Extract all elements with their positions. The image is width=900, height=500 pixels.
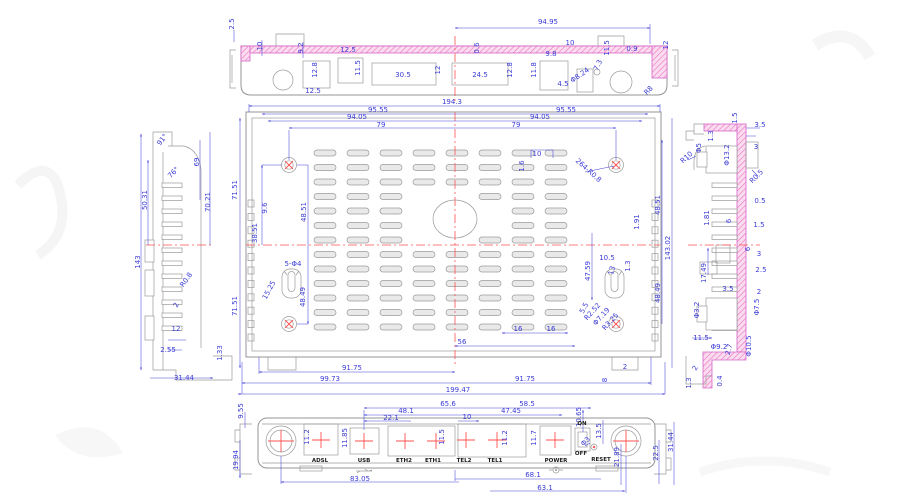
vent-slot xyxy=(446,281,468,287)
vent-slot xyxy=(545,179,567,185)
dim-label: 1.33 xyxy=(216,345,224,361)
port-label: TEL2 xyxy=(457,458,472,464)
dim-label: 5-Φ4 xyxy=(285,260,302,268)
dim-label: 1.3 xyxy=(707,130,715,141)
vent-slot xyxy=(380,252,402,258)
dim-label: 16 xyxy=(547,325,556,333)
tel-ports xyxy=(458,424,526,457)
vent-slot xyxy=(545,252,567,258)
vent-slot xyxy=(545,194,567,200)
vent-slot xyxy=(347,208,369,214)
dim-label: 69 xyxy=(193,158,201,167)
vent-slot xyxy=(314,179,336,185)
dim-label: 11.85 xyxy=(341,428,349,448)
vent-slot xyxy=(545,266,567,272)
dim-label: 91.75 xyxy=(515,375,535,383)
vent-slot xyxy=(380,165,402,171)
dim-label: 68.1 xyxy=(525,471,541,479)
dim-label: 12.5 xyxy=(340,46,356,54)
vent-slot xyxy=(347,223,369,229)
fin xyxy=(712,235,737,240)
dim-label: 12.8 xyxy=(506,62,514,78)
dim-label: 19.94 xyxy=(232,449,240,470)
vent-slot xyxy=(545,281,567,287)
port-label: TEL1 xyxy=(488,458,503,464)
dim-label: 6 xyxy=(725,218,733,223)
vent-slot xyxy=(347,252,369,258)
section-wall-hatch xyxy=(737,124,746,352)
wall-hole xyxy=(248,200,254,207)
dim-label: 2.5 xyxy=(228,18,236,29)
port-label: ON xyxy=(577,421,587,427)
top-edge-view: 2.5109.212.512.812.511.530.51224.512.80.… xyxy=(228,18,678,102)
dim-label: 2.5 xyxy=(755,266,766,274)
vent-slot xyxy=(314,150,336,156)
vent-slot xyxy=(512,295,534,301)
dim-label: 71.51 xyxy=(231,296,239,316)
vent-slot xyxy=(347,281,369,287)
vent-slot xyxy=(479,165,501,171)
vent-slot xyxy=(413,295,435,301)
port-center-mark xyxy=(355,433,373,449)
dim-label: 0.4 xyxy=(716,375,724,387)
dim-label: 11.7 xyxy=(530,430,538,446)
dim-label: 70.21 xyxy=(204,192,212,212)
dim-label: 1.91 xyxy=(633,214,641,230)
left-side-view: 14391°6970.2150.3176°R0.82122.551.3331.4… xyxy=(134,132,232,382)
vent-slot xyxy=(380,179,402,185)
dim-label: Φ8.24 xyxy=(569,66,591,85)
wall-hole xyxy=(248,280,254,287)
vent-slot xyxy=(512,281,534,287)
vent-slot xyxy=(446,295,468,301)
dim-label: Φ7.5 xyxy=(753,299,761,316)
dim-label: 2 xyxy=(757,288,761,296)
fin xyxy=(712,196,737,201)
port-label: OFF xyxy=(575,451,587,457)
dim-label: 48.49 xyxy=(299,287,307,307)
dim-label: 1.3 xyxy=(685,377,693,388)
dim-label: 94.05 xyxy=(347,113,367,121)
dim-label: 9.8 xyxy=(545,50,556,58)
vent-slot xyxy=(347,179,369,185)
screw-cross-mark xyxy=(612,161,620,169)
vent-slot xyxy=(347,150,369,156)
dim-label: 9.2 xyxy=(297,42,305,53)
vent-slot xyxy=(314,223,336,229)
usb-icon xyxy=(356,469,372,473)
dim-lines xyxy=(148,132,213,378)
dim-label: 17.49 xyxy=(700,263,708,283)
vent-slot xyxy=(512,266,534,272)
vent-slot xyxy=(314,266,336,272)
screw-cross-mark xyxy=(285,320,293,328)
vent-slot xyxy=(347,324,369,330)
fin xyxy=(162,222,182,227)
mount-hole-right xyxy=(610,71,632,93)
vent-slot xyxy=(413,165,435,171)
port-label: USB xyxy=(358,458,371,464)
dim-label: 95.55 xyxy=(368,106,388,114)
vent-slot xyxy=(314,324,336,330)
dim-label: 12.5 xyxy=(305,87,321,95)
dim-label: 8 xyxy=(601,378,609,382)
fin xyxy=(162,274,182,279)
wall-hole xyxy=(248,294,254,301)
fin xyxy=(162,248,182,253)
dim-label: 12 xyxy=(434,66,442,75)
vent-slot xyxy=(314,252,336,258)
bottom-tab-left xyxy=(268,357,296,370)
dim-label: 47.45 xyxy=(501,407,521,415)
dim-label: 79 xyxy=(512,121,521,129)
vent-slot xyxy=(380,208,402,214)
vent-slot xyxy=(446,165,468,171)
dim-label: Φ3.2 xyxy=(693,302,701,319)
port-label: ETH2 xyxy=(396,458,412,464)
section-foot-hatch xyxy=(703,352,746,388)
vent-slot xyxy=(512,223,534,229)
vent-slot xyxy=(413,179,435,185)
vent-slot xyxy=(314,194,336,200)
fin xyxy=(162,235,182,240)
dim-label: 2 xyxy=(623,363,627,371)
vent-slot xyxy=(545,310,567,316)
dim-label: 0.9 xyxy=(626,45,637,53)
vent-slot xyxy=(347,165,369,171)
vent-slot xyxy=(545,208,567,214)
dim-label: 6 xyxy=(744,246,752,251)
dim-label: Φ13.2 xyxy=(723,144,731,165)
fin xyxy=(712,209,737,214)
vent-slot xyxy=(545,150,567,156)
wall-hole xyxy=(248,307,254,314)
vent-slot xyxy=(446,150,468,156)
vent-slot xyxy=(479,310,501,316)
dim-label: 1.5 xyxy=(731,112,739,123)
vent-slot xyxy=(380,150,402,156)
leader-lines xyxy=(531,150,614,172)
dim-label: 10 xyxy=(533,150,542,158)
vent-slot xyxy=(479,252,501,258)
port-center-mark xyxy=(396,433,414,449)
vent-slot xyxy=(347,295,369,301)
dim-label: 11.5 xyxy=(603,40,611,56)
port-center-mark xyxy=(546,432,564,448)
dim-label: 48.49 xyxy=(654,283,662,303)
vent-slot xyxy=(512,237,534,243)
side-boss xyxy=(145,316,154,340)
dim-label: 7.3 xyxy=(592,58,604,71)
vent-slot xyxy=(380,266,402,272)
top-boss xyxy=(706,146,737,173)
dim-label: 4.5 xyxy=(557,80,568,88)
dim-label: 47.59 xyxy=(584,261,592,281)
vent-slot xyxy=(314,281,336,287)
wall-hole xyxy=(248,334,254,341)
dim-label: 31.44 xyxy=(174,374,195,382)
vent-slot xyxy=(479,150,501,156)
vent-slot xyxy=(545,237,567,243)
top-clip-profile xyxy=(686,124,704,140)
vent-slot xyxy=(479,237,501,243)
bottom-boss xyxy=(706,298,737,330)
vent-slot xyxy=(347,237,369,243)
vent-slot xyxy=(413,310,435,316)
top-view-hatched-edge xyxy=(250,46,654,53)
dim-label: 91.75 xyxy=(342,364,362,372)
dim-label: 11.5 xyxy=(354,60,362,76)
vent-slot xyxy=(413,324,435,330)
top-boss-tip xyxy=(697,152,707,167)
side-boss xyxy=(145,270,154,296)
dim-label: 12 xyxy=(172,325,181,333)
dim-label: R0.5 xyxy=(748,168,765,185)
dim-label: 12.8 xyxy=(311,62,319,78)
dim-label: 3.5 xyxy=(722,285,733,293)
dim-label: 1.6 xyxy=(518,160,526,172)
vent-slot xyxy=(413,252,435,258)
vent-slot xyxy=(446,324,468,330)
dim-label: 194.3 xyxy=(442,98,462,106)
dim-line-83-68-63 xyxy=(281,479,625,491)
vent-slot xyxy=(347,194,369,200)
dim-label: 11.8 xyxy=(530,62,538,78)
dim-label: 3 xyxy=(754,143,758,151)
dim-label: 65.6 xyxy=(440,400,456,408)
dim-label: 1.3 xyxy=(624,260,632,271)
vent-slot xyxy=(413,150,435,156)
vent-slot xyxy=(479,295,501,301)
vent-slot xyxy=(380,281,402,287)
dim-lines-vert xyxy=(240,410,674,485)
fin xyxy=(162,183,182,188)
dim-label: 11.2 xyxy=(303,429,311,445)
dim-label: R10 xyxy=(679,150,695,165)
vent-slot xyxy=(413,281,435,287)
dim-label: 95.55 xyxy=(556,106,576,114)
dim-label: 48.51 xyxy=(654,195,662,215)
dim-label: 83.05 xyxy=(350,475,370,483)
port-label: ADSL xyxy=(312,458,329,464)
side-boss xyxy=(145,240,154,262)
front-panel-view: 9.5565.648.122.11058.547.4510.6511.211.8… xyxy=(232,400,675,493)
vent-slot xyxy=(314,165,336,171)
dim-label: 38.51 xyxy=(251,223,259,243)
vent-slot xyxy=(380,194,402,200)
dim-label: 71.51 xyxy=(231,180,239,200)
wall-hole xyxy=(248,254,254,261)
dim-label: 22.5 xyxy=(652,445,660,461)
fin xyxy=(162,313,182,318)
top-view-hatch-right-end xyxy=(652,46,667,78)
dim-label: 13.5 xyxy=(595,423,603,439)
dim-label: 58.5 xyxy=(519,400,535,408)
dim-label: Φ5 xyxy=(695,143,703,153)
vent-slot xyxy=(545,295,567,301)
vent-slot xyxy=(380,223,402,229)
dim-label: 63.1 xyxy=(537,484,553,492)
cad-drawing: 2.5109.212.512.812.511.530.51224.512.80.… xyxy=(0,0,900,500)
wall-hole xyxy=(248,321,254,328)
vent-slot xyxy=(479,281,501,287)
dim-label: 56 xyxy=(458,338,467,346)
power-port xyxy=(540,426,571,455)
vent-slot xyxy=(314,310,336,316)
vent-slot xyxy=(479,194,501,200)
right-end-bracket xyxy=(672,50,678,86)
top-view-hatch-left-end xyxy=(241,46,250,61)
dim-label: 24.5 xyxy=(472,71,488,79)
dim-label: 10 xyxy=(566,39,575,47)
wall-hole xyxy=(248,267,254,274)
dim-label: 79 xyxy=(377,121,386,129)
vent-slot xyxy=(512,252,534,258)
dim-label: 143.02 xyxy=(664,236,672,261)
port-center-mark xyxy=(457,432,475,448)
dim-label: 12 xyxy=(662,41,670,50)
dim-label: 11.2 xyxy=(501,430,509,446)
dim-label: 9.6 xyxy=(261,202,269,214)
vent-slot xyxy=(380,324,402,330)
fin xyxy=(712,183,737,188)
dim-label: 11.5 xyxy=(693,334,709,342)
dim-label: 22.1 xyxy=(383,414,399,422)
vent-slot xyxy=(347,310,369,316)
port-label: RESET xyxy=(591,457,611,463)
vent-slot xyxy=(314,208,336,214)
wall-hole xyxy=(248,213,254,220)
dim-label: 2.55 xyxy=(160,346,176,354)
vent-slot xyxy=(446,252,468,258)
fin xyxy=(162,196,182,201)
reset-hole xyxy=(591,444,597,450)
fin xyxy=(162,287,182,292)
vent-slot xyxy=(314,295,336,301)
dim-label: 3 xyxy=(757,250,761,258)
vent-slot xyxy=(446,266,468,272)
vent-slot xyxy=(380,295,402,301)
dim-label: 10 xyxy=(463,413,472,421)
dim-label: 264-R0.8 xyxy=(574,157,603,184)
mount-hole-left xyxy=(273,70,293,90)
vent-slot xyxy=(479,324,501,330)
vent-slot xyxy=(446,179,468,185)
dim-label: 91° xyxy=(155,132,169,147)
dim-label: 143 xyxy=(134,255,142,268)
vent-slot xyxy=(380,310,402,316)
dim-label: 16 xyxy=(514,325,523,333)
dim-label: 76° xyxy=(166,165,180,179)
vent-slot xyxy=(479,266,501,272)
dim-label: 10.5 xyxy=(599,254,615,262)
vent-slot xyxy=(512,194,534,200)
right-side-section-view: 1.53.51.3Φ5Φ13.23R10R0.50.51.8161.56317.… xyxy=(679,112,767,388)
vent-slot xyxy=(512,179,534,185)
dim-label: 99.73 xyxy=(320,375,340,383)
section-top-hatch xyxy=(704,124,737,131)
vent-slot xyxy=(512,310,534,316)
reset-center-mark xyxy=(593,446,595,448)
dim-label: 0.5 xyxy=(754,197,765,205)
dim-label: 1.5 xyxy=(753,221,764,229)
vent-slot-array xyxy=(314,150,567,330)
dim-label: 48.1 xyxy=(398,407,414,415)
vent-slot xyxy=(446,310,468,316)
main-plan-view: 194.395.5595.5594.0594.057979101.6264-R0… xyxy=(231,98,672,394)
vent-slot xyxy=(347,266,369,272)
dim-label: 15.25 xyxy=(261,279,277,300)
screw-cross-mark xyxy=(285,161,293,169)
dim-label: 1.81 xyxy=(703,210,711,226)
dim-label: 50.31 xyxy=(141,190,149,210)
left-end-bracket xyxy=(230,50,236,88)
vent-slot xyxy=(512,150,534,156)
dim-label: 94.95 xyxy=(538,18,558,26)
dim-label: 0.6 xyxy=(473,42,481,54)
vent-slot xyxy=(545,223,567,229)
dim-label: 48.51 xyxy=(300,202,308,222)
dim-label: 30.5 xyxy=(395,71,411,79)
fin xyxy=(162,261,182,266)
dim-label: 21.89 xyxy=(613,447,621,467)
dim-label: 94.05 xyxy=(530,113,550,121)
vent-slot xyxy=(413,266,435,272)
dim-label: 31.44 xyxy=(667,431,675,452)
dim-label: 3.5 xyxy=(754,121,765,129)
port-label: ETH1 xyxy=(425,458,441,464)
vent-slot xyxy=(512,208,534,214)
dim-label: 11.5 xyxy=(438,429,446,445)
dim-label: 199.47 xyxy=(446,386,471,394)
dim-label: 2 xyxy=(691,364,700,372)
port-center-mark xyxy=(312,432,330,448)
dim-label: 9.55 xyxy=(237,403,245,419)
dim-label: Φ10.5 xyxy=(745,335,753,356)
fin xyxy=(712,274,737,279)
cad-drawing-stage: 2.5109.212.512.812.511.530.51224.512.80.… xyxy=(0,0,900,500)
fin xyxy=(162,209,182,214)
vent-slot xyxy=(314,237,336,243)
vent-slot xyxy=(479,179,501,185)
top-clip-right xyxy=(598,36,624,46)
port-label: POWER xyxy=(545,458,569,464)
dim-label: 10 xyxy=(256,42,264,51)
vent-slot xyxy=(380,237,402,243)
vent-slot xyxy=(545,165,567,171)
